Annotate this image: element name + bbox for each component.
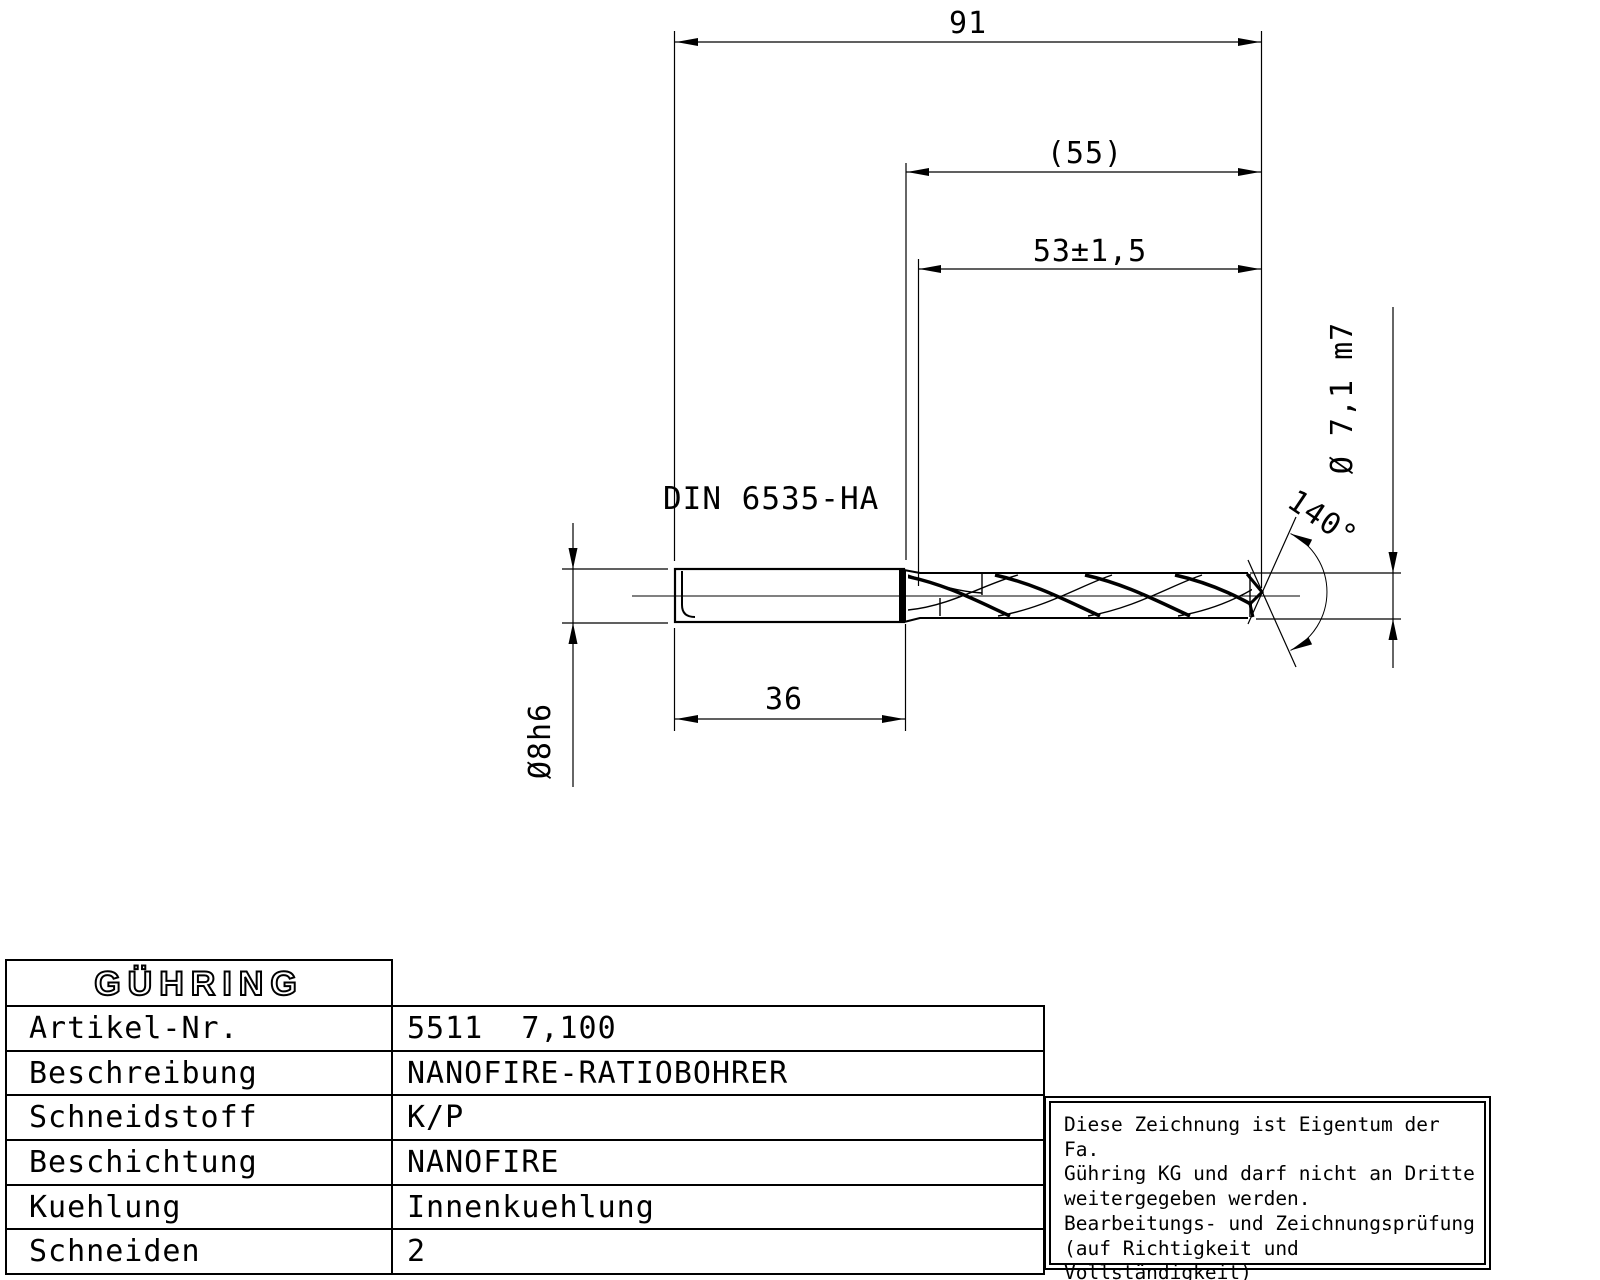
disclaimer-box: Diese Zeichnung ist Eigentum der Fa. Güh… [1044,1096,1491,1270]
table-row: Schneidstoff K/P [7,1094,1043,1139]
dim-flute-length-tolerance-text: 53±1,5 [1033,234,1147,269]
dim-shank-diameter-text: Ø8h6 [523,703,558,779]
dim-shank-length-text: 36 [765,682,803,717]
row-value: Innenkuehlung [393,1186,1043,1229]
row-label: Beschreibung [7,1052,393,1095]
table-row: Beschichtung NANOFIRE [7,1139,1043,1184]
dimension-arrowheads [569,38,1398,723]
table-row: Artikel-Nr. 5511 7,100 [7,1007,1043,1050]
dim-angle-leg-upper [1248,517,1296,624]
dim-flute-ref-length-text: (55) [1047,136,1123,171]
row-label: Kuehlung [7,1186,393,1229]
row-label: Schneidstoff [7,1096,393,1139]
dim-angle-leg-lower [1248,560,1296,667]
dim-drill-diameter-text: Ø 7,1 m7 [1325,322,1360,475]
dim-point-angle-text: 140° [1281,483,1364,555]
guehring-logo: GÜHRING [94,965,304,1004]
row-value: 2 [393,1230,1043,1273]
row-label: Schneiden [7,1230,393,1273]
logo-cell: GÜHRING [5,959,393,1007]
technical-drawing: 91 (55) 53±1,5 DIN 6535-HA 36 Ø8h6 Ø 7,1… [0,0,1600,930]
table-row: Kuehlung Innenkuehlung [7,1184,1043,1229]
row-value: 5511 7,100 [393,1007,1043,1050]
row-value: K/P [393,1096,1043,1139]
table-row: Beschreibung NANOFIRE-RATIOBOHRER [7,1050,1043,1095]
dimension-lines [562,31,1401,787]
dim-overall-length-text: 91 [949,6,987,41]
disclaimer-text: Diese Zeichnung ist Eigentum der Fa. Güh… [1049,1101,1486,1265]
dim-angle-arc [1291,534,1327,651]
shank-norm-label: DIN 6535-HA [663,481,879,517]
row-label: Artikel-Nr. [7,1007,393,1050]
title-block-table: Artikel-Nr. 5511 7,100 Beschreibung NANO… [5,1005,1045,1275]
row-value: NANOFIRE [393,1141,1043,1184]
row-label: Beschichtung [7,1141,393,1184]
row-value: NANOFIRE-RATIOBOHRER [393,1052,1043,1095]
table-row: Schneiden 2 [7,1228,1043,1273]
drill-technical-drawing-page: { "colors": { "ink": "#000000", "backgro… [0,0,1600,1280]
